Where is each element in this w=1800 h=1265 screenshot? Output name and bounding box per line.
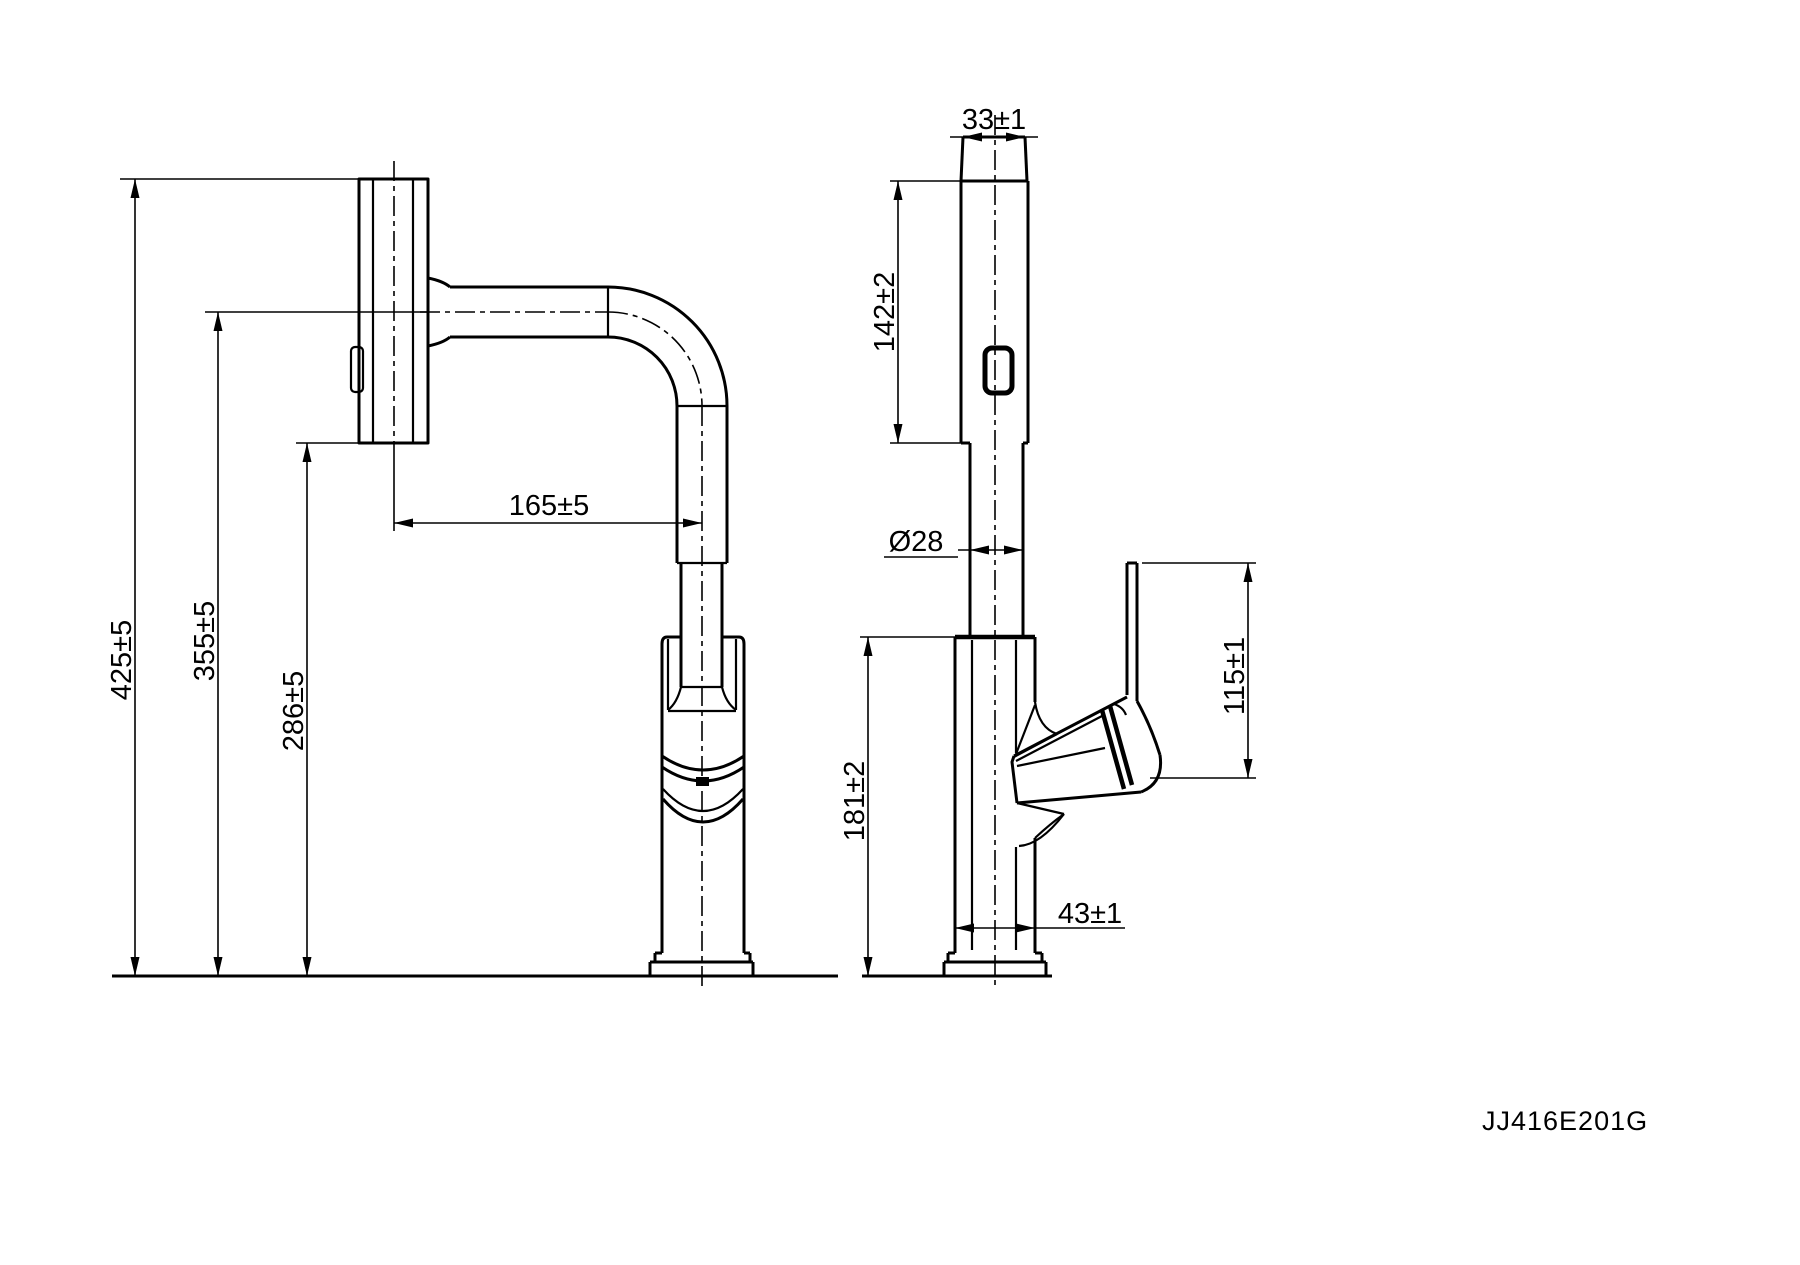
side-view-centerlines [394, 161, 702, 990]
dim-base-diameter-label: 43±1 [1058, 898, 1122, 930]
dim-head-width-label: 33±1 [962, 104, 1026, 136]
dim-body-top-height-label: 286±5 [278, 671, 310, 751]
side-view-arrowheads [131, 179, 703, 976]
sensor-button-side [351, 347, 363, 392]
sensor-window [985, 348, 1012, 393]
handle-tip-mark [696, 777, 709, 786]
handle-lever [1012, 563, 1161, 846]
dim-pipe-diameter-label: Ø28 [889, 526, 944, 558]
dim-spout-reach-label: 165±5 [509, 490, 589, 522]
dim-mount-height-label: 181±2 [839, 761, 871, 841]
side-view: 425±5 355±5 286±5 165±5 [106, 161, 838, 990]
side-view-dimension-lines [120, 179, 702, 976]
dim-spout-height-label: 355±5 [189, 601, 221, 681]
dim-total-height-label: 425±5 [106, 620, 138, 700]
drawing-sheet: 425±5 355±5 286±5 165±5 [0, 0, 1800, 1265]
side-view-faucet-outline [112, 179, 838, 976]
dim-head-length-label: 142±2 [869, 272, 901, 352]
body-ring-upper [662, 756, 744, 770]
dim-handle-height-label: 115±1 [1219, 637, 1251, 715]
front-view: 33±1 142±2 Ø28 181±2 115±1 43±1 [839, 104, 1256, 990]
technical-drawing-canvas: 425±5 355±5 286±5 165±5 [0, 0, 1800, 1265]
part-number: JJ416E201G [1482, 1106, 1648, 1136]
